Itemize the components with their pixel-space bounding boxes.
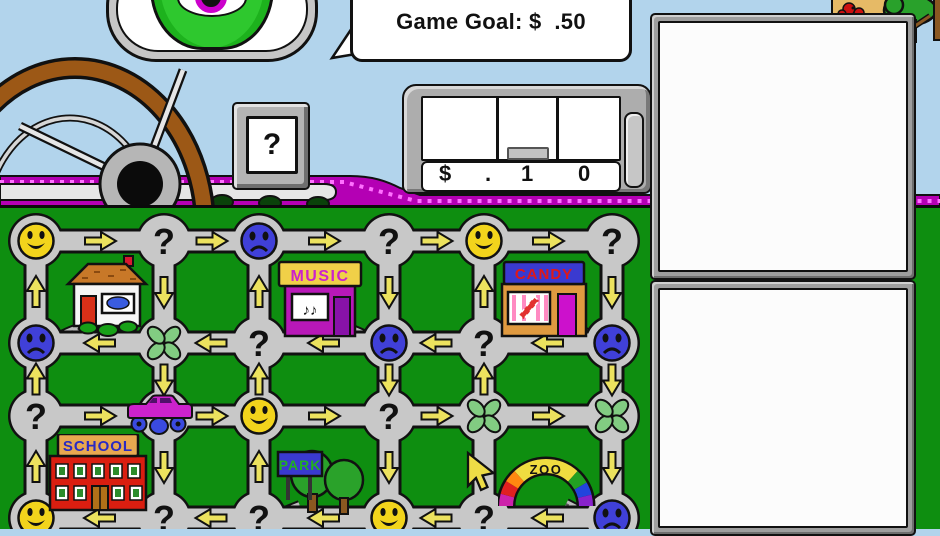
board-node-question[interactable]: ? xyxy=(378,396,400,437)
music-sign-label: MUSIC xyxy=(290,268,349,285)
monster-head xyxy=(150,0,274,50)
board-node-smiley[interactable] xyxy=(372,501,407,530)
board-node-question[interactable]: ? xyxy=(473,498,495,529)
building-candy-store[interactable]: CANDY xyxy=(498,260,590,345)
music-notes-icon: ♪♪ xyxy=(303,302,318,319)
house-door xyxy=(81,296,96,326)
game-screen: { "hud": { "game_goal": "Game Goal: $ .5… xyxy=(0,0,940,529)
coin-panes xyxy=(421,96,621,161)
board-node-question[interactable]: ? xyxy=(601,221,623,262)
money-dimes-digit: 1 xyxy=(521,161,533,187)
question-mark-icon[interactable]: ? xyxy=(246,116,298,174)
info-panel-bottom xyxy=(650,280,916,536)
svg-text:?: ? xyxy=(601,221,623,262)
pane-divider xyxy=(556,98,559,159)
svg-text:?: ? xyxy=(153,498,175,529)
pane-divider xyxy=(496,98,499,159)
candy-sign-label: CANDY xyxy=(515,266,573,283)
info-panel-top xyxy=(650,13,916,280)
coin-register: $ . 1 0 xyxy=(402,84,652,194)
board-node-sad[interactable] xyxy=(19,326,54,361)
info-panel-bottom-content xyxy=(658,288,908,528)
help-button[interactable]: ? xyxy=(232,102,310,190)
svg-text:?: ? xyxy=(378,221,400,262)
board-node-question[interactable]: ? xyxy=(25,396,47,437)
svg-text:?: ? xyxy=(25,396,47,437)
park-sign-label: PARK xyxy=(279,457,322,473)
coin-slot-tab[interactable] xyxy=(507,147,549,160)
svg-text:?: ? xyxy=(378,396,400,437)
board-node-sad[interactable] xyxy=(372,326,407,361)
info-panel-top-content xyxy=(658,21,908,272)
money-dollar-sign: $ xyxy=(439,161,451,187)
board-node-sad[interactable] xyxy=(242,224,277,259)
board-node-question[interactable]: ? xyxy=(153,498,175,529)
monster-mirror xyxy=(106,0,318,62)
monster-eye-icon xyxy=(177,0,247,17)
register-lever[interactable] xyxy=(624,112,644,188)
money-decimal-point: . xyxy=(485,161,491,187)
board-node-sad[interactable] xyxy=(595,501,630,530)
mirror-glass xyxy=(116,0,308,52)
zoo-sign-label: ZOO xyxy=(530,462,563,477)
building-zoo[interactable]: ZOO xyxy=(498,448,598,517)
board-node-question[interactable]: ? xyxy=(248,323,270,364)
board-node-question[interactable]: ? xyxy=(378,221,400,262)
board-node-smiley[interactable] xyxy=(19,224,54,259)
building-park[interactable]: PARK xyxy=(272,444,372,523)
music-door xyxy=(334,297,350,336)
board-node-question[interactable]: ? xyxy=(473,323,495,364)
building-house[interactable] xyxy=(62,254,154,345)
board-node-smiley[interactable] xyxy=(467,224,502,259)
money-display: $ . 1 0 xyxy=(421,161,621,192)
board-node-sad[interactable] xyxy=(595,326,630,361)
board-node-question[interactable]: ? xyxy=(248,498,270,529)
board-node-question[interactable]: ? xyxy=(153,221,175,262)
game-goal-bubble: Game Goal: $ .50 xyxy=(350,0,632,62)
svg-text:?: ? xyxy=(473,498,495,529)
candy-door xyxy=(558,294,576,336)
game-goal-text: Game Goal: $ .50 xyxy=(396,9,586,35)
school-sign-label: SCHOOL xyxy=(63,438,133,455)
building-music-store[interactable]: ♪♪ MUSIC xyxy=(277,260,363,345)
building-school[interactable]: SCHOOL xyxy=(48,434,148,517)
svg-text:?: ? xyxy=(473,323,495,364)
money-pennies-digit: 0 xyxy=(578,161,590,187)
svg-text:?: ? xyxy=(153,221,175,262)
svg-text:?: ? xyxy=(248,323,270,364)
svg-text:?: ? xyxy=(248,498,270,529)
board-node-smiley[interactable] xyxy=(242,399,277,434)
